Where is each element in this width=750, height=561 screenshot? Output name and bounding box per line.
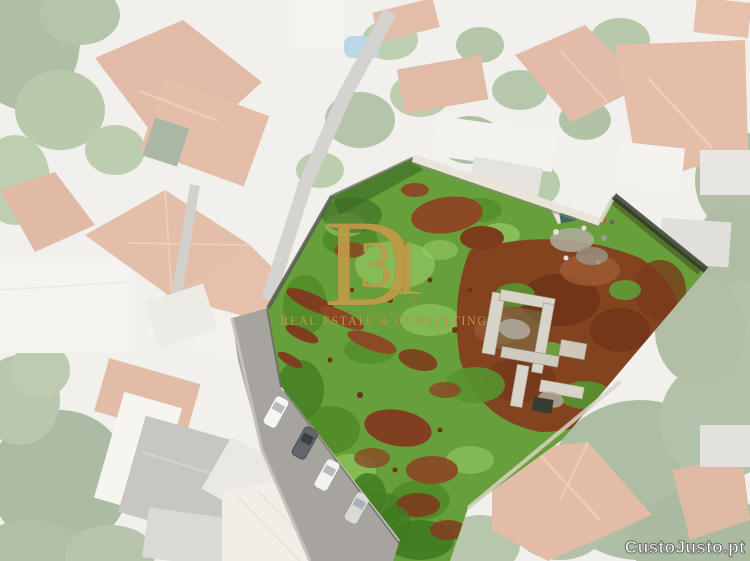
aerial-scene xyxy=(0,0,750,561)
aerial-photo: D 3 1 ® REAL ESTATE & CONSULTING CustoJu… xyxy=(0,0,750,561)
